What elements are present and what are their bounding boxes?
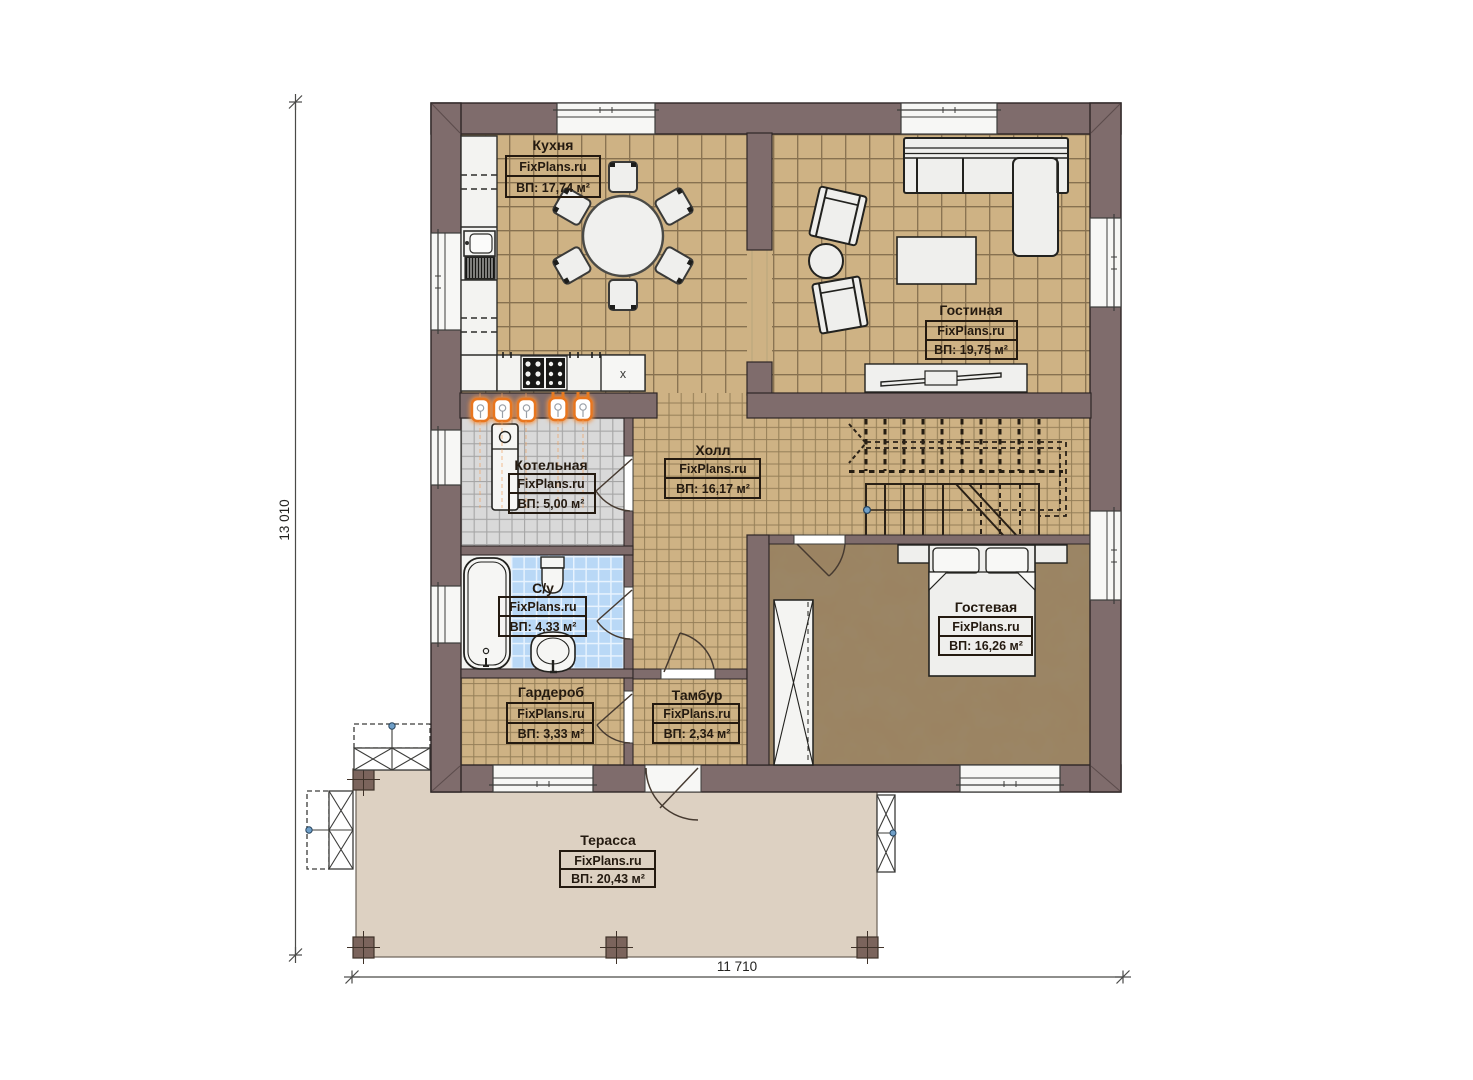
svg-text:С/у: С/у	[532, 580, 554, 596]
svg-text:13 010: 13 010	[277, 499, 292, 540]
svg-text:Гостевая: Гостевая	[955, 599, 1017, 615]
svg-text:FixPlans.ru: FixPlans.ru	[509, 600, 576, 614]
svg-text:ВП: 17,74 м²: ВП: 17,74 м²	[516, 181, 590, 195]
svg-text:FixPlans.ru: FixPlans.ru	[663, 707, 730, 721]
svg-text:Терасса: Терасса	[580, 832, 636, 848]
svg-text:x: x	[620, 367, 627, 381]
svg-text:FixPlans.ru: FixPlans.ru	[517, 707, 584, 721]
svg-text:FixPlans.ru: FixPlans.ru	[574, 854, 641, 868]
svg-text:ВП: 5,00 м²: ВП: 5,00 м²	[518, 497, 585, 511]
svg-text:ВП: 16,17 м²: ВП: 16,17 м²	[676, 482, 750, 496]
svg-text:ВП: 2,34 м²: ВП: 2,34 м²	[664, 727, 731, 741]
svg-text:ВП: 16,26 м²: ВП: 16,26 м²	[949, 639, 1023, 653]
svg-text:Гардероб: Гардероб	[518, 684, 585, 700]
svg-text:Котельная: Котельная	[514, 457, 587, 473]
svg-text:ВП: 3,33 м²: ВП: 3,33 м²	[518, 727, 585, 741]
svg-text:ВП: 4,33 м²: ВП: 4,33 м²	[510, 620, 577, 634]
svg-text:FixPlans.ru: FixPlans.ru	[937, 324, 1004, 338]
svg-text:11 710: 11 710	[717, 959, 757, 974]
svg-text:FixPlans.ru: FixPlans.ru	[952, 620, 1019, 634]
svg-text:ВП: 20,43 м²: ВП: 20,43 м²	[571, 872, 645, 886]
svg-text:FixPlans.ru: FixPlans.ru	[519, 160, 586, 174]
svg-text:Гостиная: Гостиная	[939, 302, 1002, 318]
svg-text:Кухня: Кухня	[533, 137, 574, 153]
svg-text:Холл: Холл	[695, 442, 730, 458]
svg-text:Тамбур: Тамбур	[672, 687, 723, 703]
svg-text:FixPlans.ru: FixPlans.ru	[517, 477, 584, 491]
svg-text:FixPlans.ru: FixPlans.ru	[679, 462, 746, 476]
svg-text:ВП: 19,75 м²: ВП: 19,75 м²	[934, 343, 1008, 357]
